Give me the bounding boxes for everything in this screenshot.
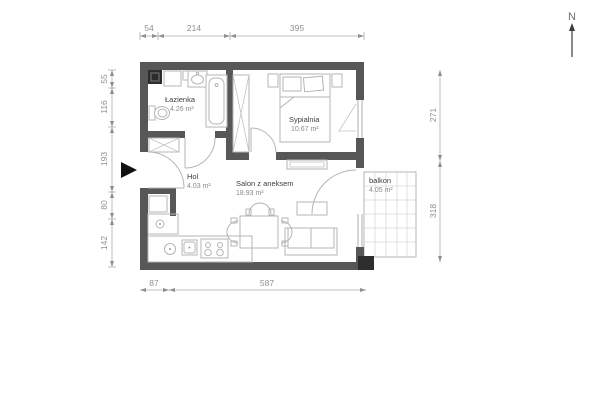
dimension-right: 271 318 xyxy=(428,70,442,262)
dimension-bottom: 87 587 xyxy=(140,278,366,292)
balcony-label: balkon xyxy=(369,176,391,185)
room-labels: Łazienka 4.26 m² Sypialnia 10.67 m² Hol … xyxy=(165,95,320,197)
stove xyxy=(201,239,228,258)
living-label: Salon z aneksem xyxy=(236,179,294,188)
bathroom-label: Łazienka xyxy=(165,95,196,104)
kitchen-sink xyxy=(182,240,197,255)
entrance-arrow xyxy=(121,162,137,178)
fridge xyxy=(149,196,167,212)
dim-bottom-1: 87 xyxy=(149,278,159,288)
hall-wardrobe xyxy=(149,138,179,152)
dim-left-2: 116 xyxy=(99,100,109,114)
dimension-top: 54 214 395 xyxy=(140,23,364,40)
sofa xyxy=(285,228,337,255)
kitchen-counter xyxy=(148,236,252,262)
dim-top-1: 54 xyxy=(144,23,154,33)
nightstand-right xyxy=(332,74,342,87)
living-window xyxy=(358,214,362,247)
floor-plan-page: balkon 4.05 m² xyxy=(0,0,600,418)
tv-stand xyxy=(287,160,327,169)
balcony: balkon 4.05 m² xyxy=(364,172,416,257)
bathroom-sink xyxy=(188,71,207,87)
dining-table xyxy=(227,203,292,248)
bathtub xyxy=(206,75,227,127)
dim-top-3: 395 xyxy=(290,23,304,33)
meter-cabinet xyxy=(148,214,178,234)
dim-bottom-2: 587 xyxy=(260,278,274,288)
walls xyxy=(140,62,374,270)
floor-plan-drawing: balkon 4.05 m² xyxy=(0,0,600,418)
north-label: N xyxy=(568,11,576,23)
balcony-area: 4.05 m² xyxy=(369,187,393,194)
dim-left-4: 80 xyxy=(99,200,109,210)
bedroom-door xyxy=(251,128,276,153)
dim-left-3: 193 xyxy=(99,152,109,166)
hall-label: Hol xyxy=(187,172,199,181)
living-area: 18.93 m² xyxy=(236,190,264,197)
bedroom-label: Sypialnia xyxy=(289,115,320,124)
tall-wardrobe xyxy=(233,75,249,152)
entrance-door xyxy=(148,152,184,188)
bedroom-area: 10.67 m² xyxy=(291,126,319,133)
dimension-left: 55 116 193 80 142 xyxy=(99,70,116,267)
toilet xyxy=(149,106,170,120)
north-indicator: N xyxy=(568,11,576,57)
nightstand-left xyxy=(268,74,278,87)
bedroom-window xyxy=(339,100,362,138)
dim-left-5: 142 xyxy=(99,236,109,250)
dim-right-1: 271 xyxy=(428,108,438,122)
hall-area: 4.03 m² xyxy=(187,183,211,190)
bathroom-area: 4.26 m² xyxy=(170,106,194,113)
bathroom-door xyxy=(185,138,215,168)
dim-left-1: 55 xyxy=(99,74,109,84)
dim-top-2: 214 xyxy=(187,23,201,33)
balcony-door xyxy=(312,170,356,214)
dim-right-2: 318 xyxy=(428,204,438,218)
